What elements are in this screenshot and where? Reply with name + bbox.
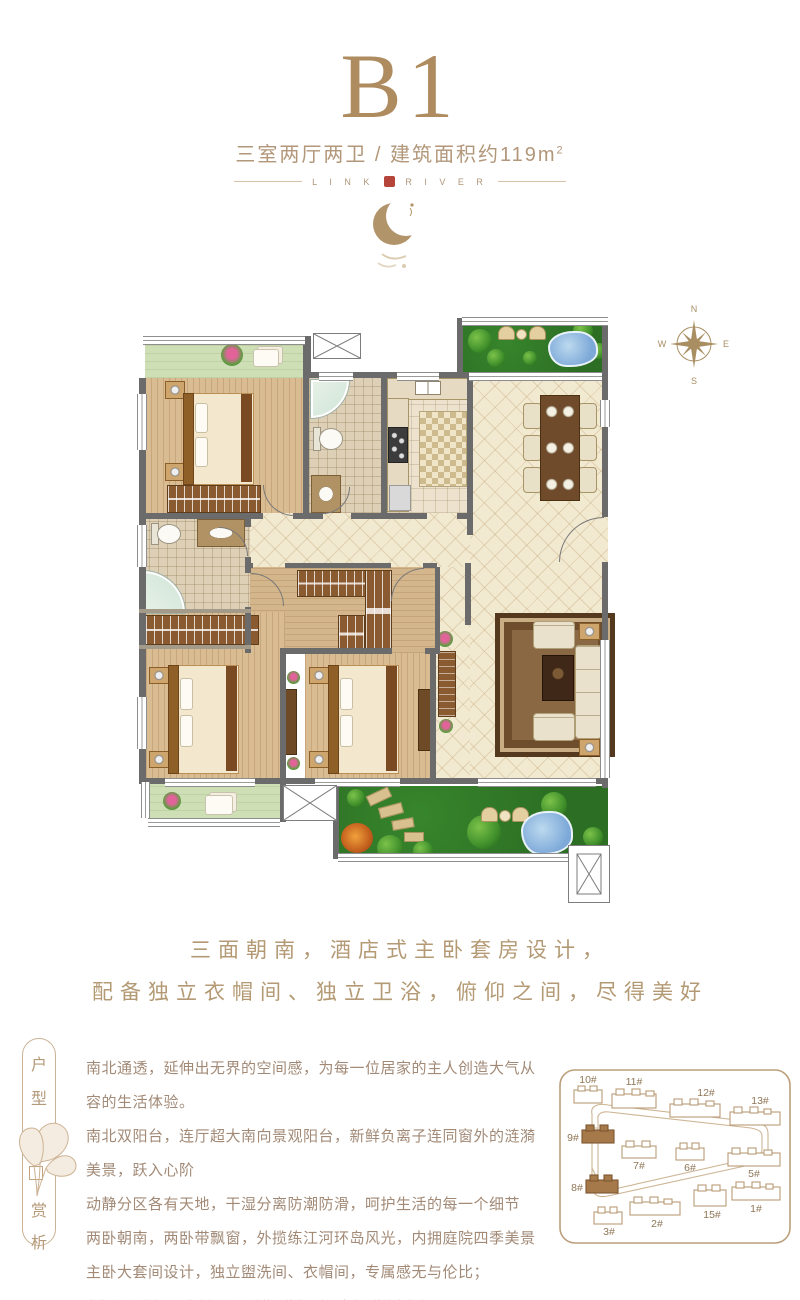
orange-bush-icon <box>341 823 373 853</box>
brand-left: L I N K <box>312 177 374 187</box>
window <box>137 697 147 749</box>
tree-icon <box>468 329 492 353</box>
wall-segment <box>430 654 436 778</box>
wall-segment <box>467 513 473 535</box>
tree-icon <box>347 789 365 807</box>
building-5 <box>728 1148 780 1166</box>
building-label: 9# <box>567 1132 579 1144</box>
sliding-door <box>469 372 602 381</box>
garden-table-icon <box>516 329 527 340</box>
wall-segment <box>435 567 440 652</box>
banner-char: 析 <box>23 1229 55 1253</box>
wall-segment <box>602 318 608 378</box>
nightstand-icon <box>309 751 329 768</box>
building-label: 3# <box>603 1226 615 1238</box>
side-table-icon <box>579 739 600 756</box>
floor-plan <box>135 315 685 905</box>
window <box>148 818 280 827</box>
garden-chair-icon <box>529 326 546 340</box>
description-line: 南北通透，延伸出无界的空间感，为每一位居家的主人创造大气从容的生活体验。 <box>86 1052 546 1120</box>
subtitle-sup: 2 <box>557 144 565 156</box>
building-label: 10# <box>579 1074 597 1086</box>
window <box>600 400 610 427</box>
description-line: 两卧朝南，两卧带飘窗，外揽练江河环岛风光，内拥庭院四季美景 <box>86 1222 546 1256</box>
walkin-closet-icon <box>145 615 259 645</box>
wall-segment <box>602 378 608 400</box>
armchair-icon <box>533 621 575 649</box>
partition <box>139 645 251 649</box>
nightstand-icon <box>149 751 169 768</box>
building-label: 13# <box>751 1095 769 1107</box>
brand-right: R I V E R <box>405 177 488 187</box>
flower-pot-icon <box>287 671 300 684</box>
wall-segment <box>440 778 478 784</box>
wall-segment <box>280 654 286 778</box>
wardrobe-icon <box>167 485 261 513</box>
wall-segment <box>303 378 309 513</box>
pillow-icon <box>340 715 353 747</box>
dining-chair-icon <box>578 467 597 493</box>
brochure-page: B1 三室两厅两卫 / 建筑面积约119m2 L I N K R I V E R <box>0 0 800 1300</box>
building-label: 12# <box>697 1087 715 1099</box>
bed1-headboard <box>183 393 194 485</box>
divider-line <box>234 181 302 182</box>
wall-segment <box>285 563 391 568</box>
wall-segment <box>139 450 146 513</box>
wall-segment <box>245 563 253 568</box>
nightstand-icon <box>165 463 185 481</box>
dining-chair-icon <box>578 403 597 429</box>
master-bed-headboard <box>168 665 179 774</box>
building-label: 1# <box>750 1203 762 1215</box>
bed3-runner <box>386 666 397 771</box>
pond-icon <box>548 331 598 367</box>
brand-divider: L I N K R I V E R <box>0 176 800 187</box>
wall-segment <box>139 378 146 394</box>
side-table-icon <box>579 623 600 640</box>
brand-seal-icon <box>384 176 395 187</box>
toilet-icon <box>157 524 181 544</box>
closet-icon <box>365 570 392 652</box>
subtitle-text: 三室两厅两卫 / 建筑面积约119m <box>235 144 556 166</box>
description-line: 南北双阳台，连厅超大南向景观阳台，新鲜负离子连同窗外的涟漪美景，跃入心阶 <box>86 1120 546 1188</box>
building-label: 7# <box>633 1160 645 1172</box>
banner-char: 户 <box>23 1051 55 1075</box>
garden-chair-icon <box>481 807 498 822</box>
stair-shaft <box>283 785 337 821</box>
cushion-icon <box>253 349 279 367</box>
wall-segment <box>309 513 323 519</box>
pillow-icon <box>180 715 193 747</box>
bed1-runner <box>241 394 252 482</box>
tree-icon <box>583 827 603 847</box>
armchair-icon <box>533 713 575 741</box>
wall-segment <box>139 567 146 697</box>
garden-table-icon <box>499 810 511 822</box>
description-block: 南北通透，延伸出无界的空间感，为每一位居家的主人创造大气从容的生活体验。 南北双… <box>86 1052 546 1300</box>
tree-icon <box>487 349 505 367</box>
wall-segment <box>465 563 471 625</box>
window <box>397 372 439 381</box>
closet-icon <box>297 570 371 597</box>
ginkgo-leaves-icon <box>0 1100 80 1210</box>
building-label: 2# <box>651 1218 663 1230</box>
wall-segment <box>381 378 387 513</box>
wall-segment <box>280 648 392 654</box>
bed3-headboard <box>328 665 339 774</box>
page-title: B1 <box>0 38 800 134</box>
unit-subtitle: 三室两厅两卫 / 建筑面积约119m2 <box>0 138 800 167</box>
wall-segment <box>457 318 463 378</box>
nightstand-icon <box>149 667 169 684</box>
compass-east: E <box>723 339 729 349</box>
plant-stand-icon <box>438 651 456 717</box>
coffee-table-icon <box>542 655 574 701</box>
light-well <box>313 333 361 359</box>
flower-pot-icon <box>221 344 243 366</box>
kitchen-sink-icon <box>415 381 441 395</box>
wall-segment <box>387 513 427 519</box>
nightstand-icon <box>309 667 329 684</box>
wall-segment <box>400 778 442 784</box>
nightstand-icon <box>165 381 185 399</box>
compass-north: N <box>691 304 698 314</box>
pillow-icon <box>195 403 208 433</box>
flower-pot-icon <box>439 719 453 733</box>
divider-line <box>498 181 566 182</box>
compass-south: S <box>691 376 697 386</box>
tagline-line1: 三面朝南，酒店式主卧套房设计， <box>0 934 800 964</box>
window <box>462 317 608 326</box>
toilet-icon <box>319 428 343 450</box>
flower-pot-icon <box>163 792 181 810</box>
dresser-icon <box>285 689 297 755</box>
dining-table-icon <box>540 395 580 501</box>
flower-pot-icon <box>287 757 300 770</box>
building-label: 8# <box>571 1182 583 1194</box>
site-plan: 10# 11# 12# 13# 9# 7# 6# 5# 8# 3# 2# 15#… <box>558 1068 792 1245</box>
window <box>143 336 305 345</box>
pillow-icon <box>180 678 193 710</box>
window <box>338 853 570 862</box>
window <box>137 394 147 450</box>
kitchen-mat <box>419 411 467 487</box>
building-11 <box>612 1089 656 1108</box>
building-label: 6# <box>684 1162 696 1174</box>
building-12 <box>670 1099 720 1117</box>
pillow-icon <box>340 678 353 710</box>
balcony-door <box>165 778 255 787</box>
dining-chair-icon <box>578 435 597 461</box>
moon-illustration <box>352 192 448 278</box>
garden-chair-icon <box>498 326 515 340</box>
wall-segment <box>602 562 608 640</box>
master-bed-runner <box>226 666 237 771</box>
wall-segment <box>351 513 387 519</box>
building-label: 15# <box>703 1209 721 1221</box>
sofa-icon <box>575 645 602 739</box>
description-line: 主卧大套间设计，独立盥洗间、衣帽间，专属感无与伦比； <box>86 1256 546 1290</box>
elevator-shaft <box>568 845 610 903</box>
building-2 <box>630 1197 680 1215</box>
fridge-icon <box>389 485 411 511</box>
description-line: 动静分区各有天地，干湿分离防潮防滑，呵护生活的每一个细节 <box>86 1188 546 1222</box>
stove-icon <box>388 427 408 463</box>
tree-icon <box>523 351 537 365</box>
building-label: 11# <box>626 1076 643 1088</box>
cushion-icon <box>205 795 233 815</box>
building-1 <box>732 1182 780 1200</box>
building-label: 5# <box>748 1168 760 1180</box>
window <box>600 640 610 778</box>
window <box>137 525 147 567</box>
wall-segment <box>467 378 473 513</box>
wall-segment <box>293 513 309 519</box>
pillow-icon <box>195 437 208 467</box>
corridor-floor <box>250 513 470 567</box>
wall-segment <box>602 778 608 788</box>
tagline-line2: 配备独立衣帽间、独立卫浴，俯仰之间，尽得美好 <box>0 976 800 1006</box>
partition <box>139 609 251 613</box>
wall-segment <box>602 427 608 517</box>
wall-segment <box>245 513 251 527</box>
pond-icon <box>521 811 573 855</box>
window <box>141 782 150 818</box>
window <box>319 372 353 381</box>
window <box>478 778 596 787</box>
